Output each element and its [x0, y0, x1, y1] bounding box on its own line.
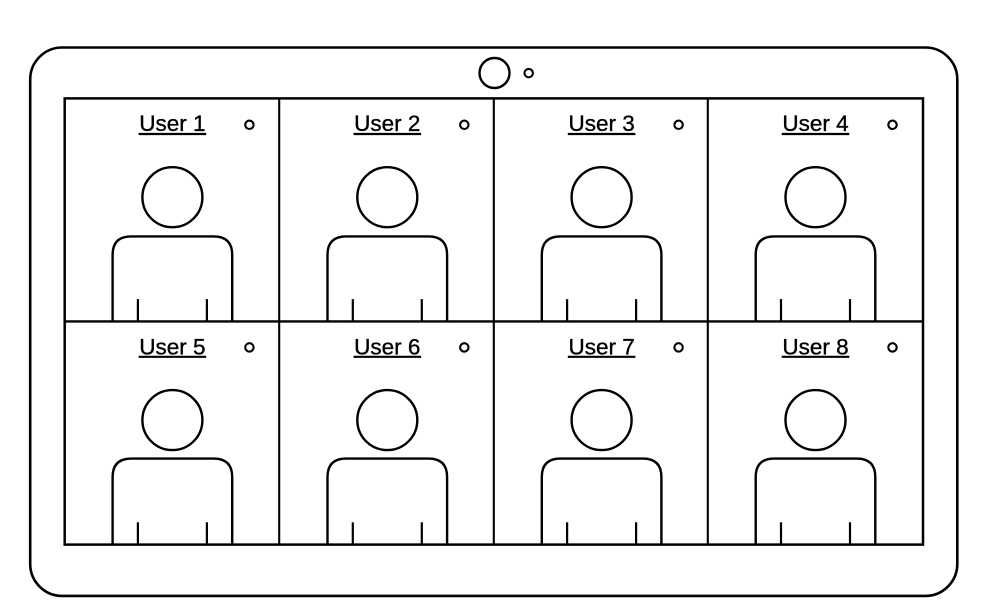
svg-text:User 3: User 3	[568, 111, 634, 136]
svg-text:User 2: User 2	[354, 111, 420, 136]
svg-text:User 1: User 1	[139, 111, 205, 136]
svg-text:User 4: User 4	[782, 111, 848, 136]
